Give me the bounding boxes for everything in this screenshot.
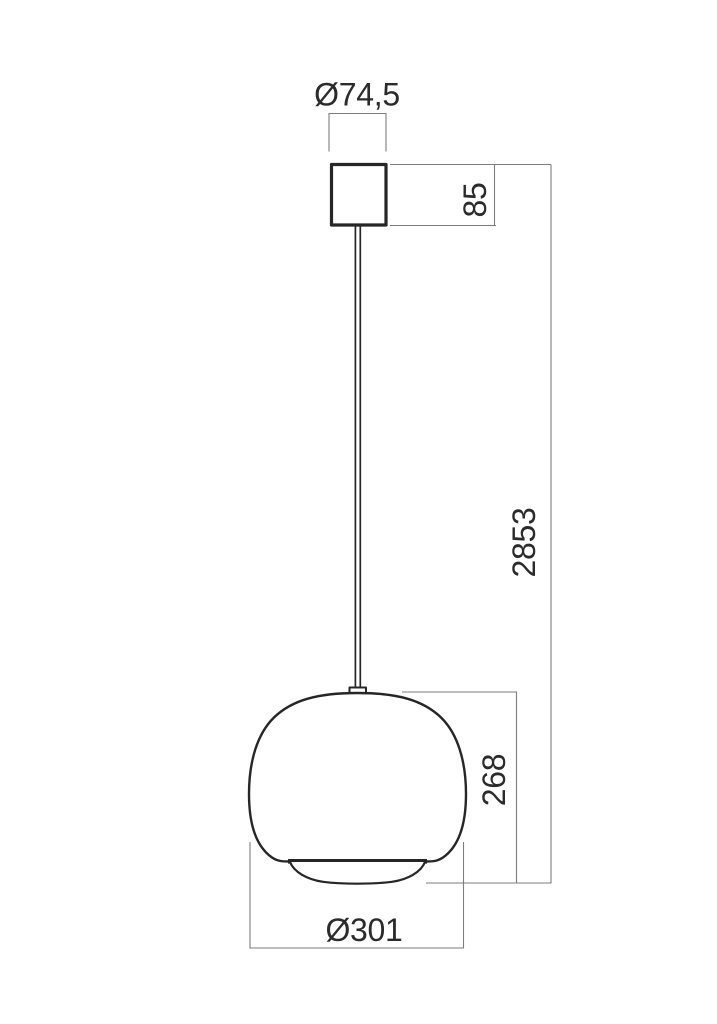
- shade-height-label: 268: [476, 754, 512, 807]
- pendant-lamp: [249, 165, 466, 884]
- ceiling-canopy: [332, 165, 387, 226]
- canopy-height-label: 85: [457, 183, 493, 218]
- canopy-diameter-dimension-bracket: [329, 114, 386, 152]
- diffuser-bowl: [290, 862, 425, 884]
- shade-diameter-label: Ø301: [325, 912, 402, 948]
- canopy-diameter-label: Ø74,5: [314, 77, 400, 113]
- overall-drop-label: 2853: [506, 508, 542, 578]
- pendant-lamp-dimension-drawing: Ø74,5 85 2853 268 Ø301: [0, 0, 717, 1024]
- shade-body: [249, 693, 466, 862]
- diagram-canvas: Ø74,5 85 2853 268 Ø301: [0, 0, 717, 1024]
